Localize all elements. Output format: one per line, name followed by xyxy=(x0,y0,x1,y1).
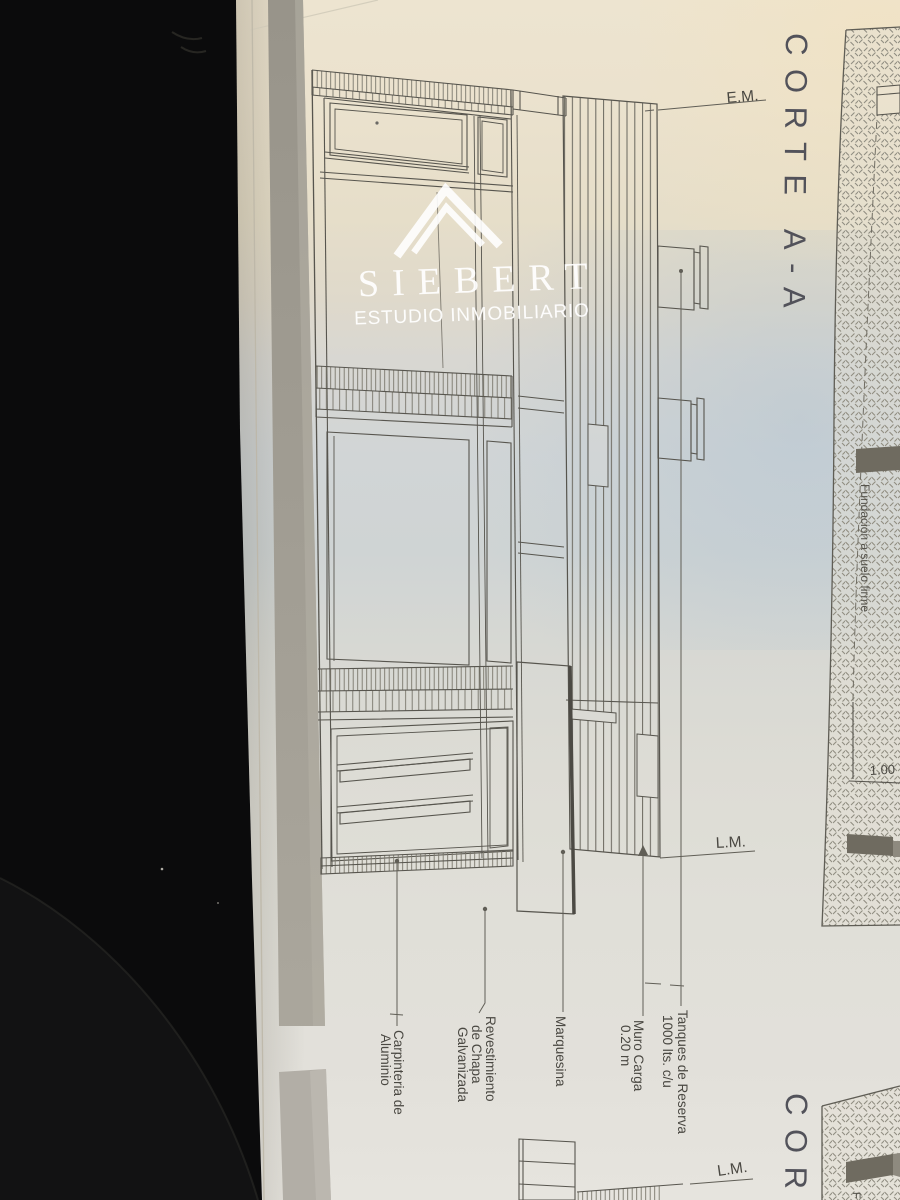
party-wall-hatch xyxy=(563,96,660,857)
svg-text:0.20 m: 0.20 m xyxy=(618,1025,633,1066)
section-title: CORTE A-A xyxy=(776,33,814,321)
terrain-hatch-2 xyxy=(822,1086,900,1200)
em-label: E.M. xyxy=(726,87,759,107)
beam-in-terrain xyxy=(877,85,900,115)
wall-opening xyxy=(588,424,608,487)
foundation-label-partial: F xyxy=(850,1192,862,1199)
svg-text:Galvanizada: Galvanizada xyxy=(455,1027,470,1103)
svg-text:Tanques de Reserva: Tanques de Reserva xyxy=(675,1010,690,1134)
blueprint-photo: E.M. L.M. L.M. 1.00 Fundación a suelo fi… xyxy=(0,0,900,1200)
label-marquesina: Marquesina xyxy=(553,1016,568,1087)
dust-speck xyxy=(217,902,219,904)
dim-label: 1.00 xyxy=(869,762,895,778)
lm-label: L.M. xyxy=(715,833,746,852)
foundation-label: Fundación a suelo firme xyxy=(858,484,872,612)
wall-opening xyxy=(637,734,658,798)
svg-text:Revestimiento: Revestimiento xyxy=(483,1016,498,1102)
dust-speck xyxy=(161,868,164,871)
section-title-partial: COR xyxy=(778,1093,814,1200)
dust-speck xyxy=(375,121,378,124)
foundation-footing xyxy=(847,834,893,856)
photographed-blueprint: E.M. L.M. L.M. 1.00 Fundación a suelo fi… xyxy=(0,0,900,1200)
watermark-brand: SIEBERT xyxy=(357,255,601,305)
svg-text:Aluminio: Aluminio xyxy=(378,1034,393,1086)
svg-text:de Chapa: de Chapa xyxy=(469,1025,484,1084)
svg-text:Marquesina: Marquesina xyxy=(553,1016,568,1087)
svg-text:1000 lts. c/u: 1000 lts. c/u xyxy=(660,1015,675,1088)
foundation-footing xyxy=(856,446,900,473)
